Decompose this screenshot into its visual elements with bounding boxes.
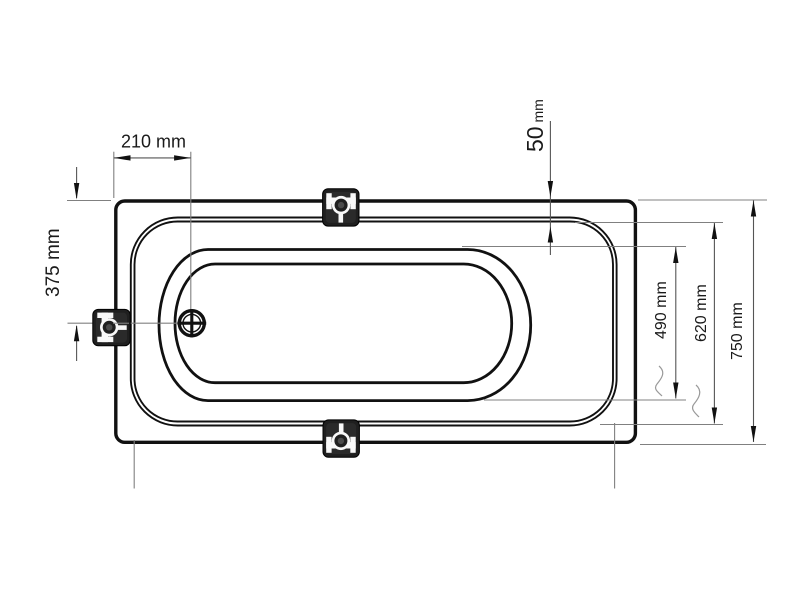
svg-text:620 mm: 620 mm [693, 284, 710, 342]
svg-text:375 mm: 375 mm [43, 228, 64, 297]
svg-text:750 mm: 750 mm [729, 302, 746, 360]
svg-text:210 mm: 210 mm [121, 132, 186, 152]
svg-text:490 mm: 490 mm [653, 281, 670, 339]
